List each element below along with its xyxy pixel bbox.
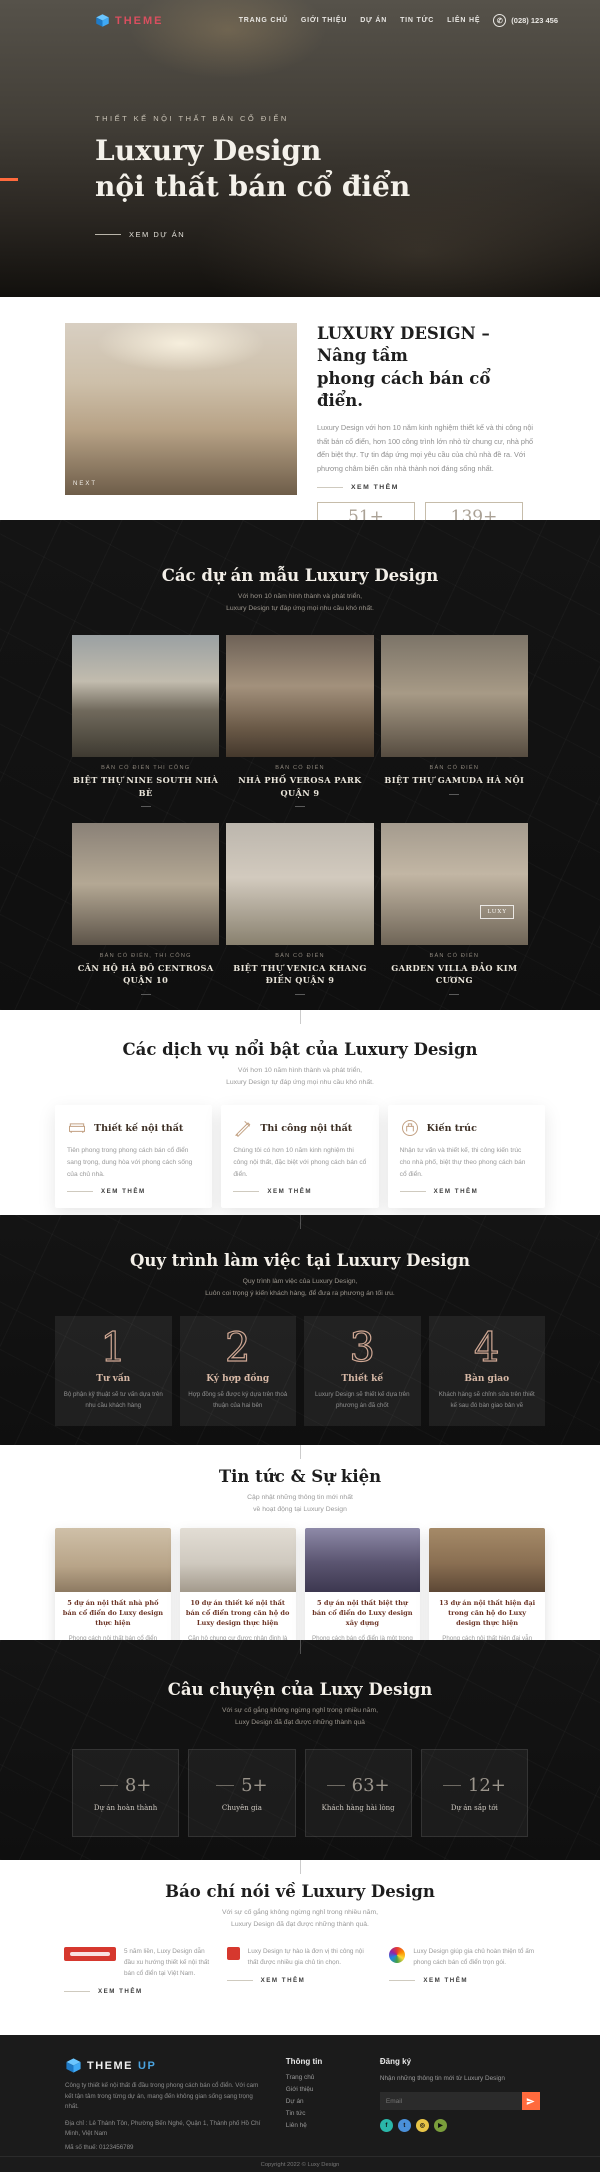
logo-cube-icon [95, 13, 110, 28]
news-subtitle: Cập nhật những thông tin mới nhất về hoạ… [55, 1492, 545, 1516]
hero-eyebrow: THIẾT KẾ NỘI THẤT BÁN CỔ ĐIỂN [95, 114, 410, 123]
footer-link-contact[interactable]: Liên hệ [286, 2122, 380, 2129]
story-stat-experts: 5+ Chuyên gia [188, 1749, 295, 1837]
send-icon [526, 2097, 535, 2106]
project-image [226, 635, 373, 757]
projects-row-1: BÁN CỔ ĐIỂN THI CÔNG BIỆT THỰ NINE SOUTH… [72, 635, 528, 807]
copyright-text: Copyright 2022 © Luxy Design [0, 2156, 600, 2172]
press-more-link[interactable]: XEM THÊM [227, 1977, 374, 1984]
logo[interactable]: THEME [95, 13, 164, 28]
projects-row-2: BÁN CỔ ĐIỂN, THI CÔNG CĂN HỘ HÀ ĐÔ CENTR… [72, 823, 528, 995]
process-steps: 1 Tư vấn Bộ phận kỹ thuật sẽ tư vấn dựa … [55, 1316, 545, 1425]
story-subtitle: Với sự cố gắng không ngừng nghỉ trong nh… [72, 1705, 528, 1729]
service-more-link[interactable]: XEM THÊM [67, 1188, 200, 1195]
project-card[interactable]: BÁN CỔ ĐIỂN NHÀ PHỐ VEROSA PARK QUẬN 9 [226, 635, 373, 807]
service-more-link[interactable]: XEM THÊM [233, 1188, 366, 1195]
step-card-1: 1 Tư vấn Bộ phận kỹ thuật sẽ tư vấn dựa … [55, 1316, 172, 1425]
footer-link-about[interactable]: Giới thiệu [286, 2086, 380, 2093]
story-stats: 8+ Dự án hoàn thành 5+ Chuyên gia 63+ Kh… [72, 1749, 528, 1837]
stat-projects: 51+ Công trình [317, 502, 415, 520]
news-card[interactable]: 5 dự án nội thất biệt thự bán cổ điển do… [305, 1528, 421, 1640]
story-section: Câu chuyện của Luxy Design Với sự cố gắn… [0, 1640, 600, 1860]
project-image [72, 635, 219, 757]
newspaper-logo-red-square [227, 1947, 240, 1960]
project-image [72, 823, 219, 945]
hero-content: THIẾT KẾ NỘI THẤT BÁN CỔ ĐIỂN Luxury Des… [95, 114, 410, 239]
footer-company-column: THEME UP Công ty thiết kế nội thất đi đầ… [65, 2057, 272, 2153]
press-more-link[interactable]: XEM THÊM [64, 1988, 211, 1995]
step-card-3: 3 Thiết kế Luxury Design sẽ thiết kế dựa… [304, 1316, 421, 1425]
services-title: Các dịch vụ nổi bật của Luxury Design [55, 1040, 545, 1059]
service-card-design[interactable]: Thiết kế nội thất Tiên phong trong phong… [55, 1105, 212, 1208]
project-card[interactable]: BÁN CỔ ĐIỂN BIỆT THỰ VENICA KHANG ĐIỀN Q… [226, 823, 373, 995]
phone-link[interactable]: ✆ (028) 123 456 [493, 14, 558, 27]
about-more-link[interactable]: XEM THÊM [317, 484, 535, 491]
press-title: Báo chí nói về Luxury Design [62, 1882, 538, 1901]
step-card-4: 4 Bàn giao Khách hàng sẽ chỉnh sửa trên … [429, 1316, 546, 1425]
nav-item-contact[interactable]: LIÊN HỆ [447, 17, 480, 24]
news-image [429, 1528, 545, 1592]
sofa-icon [67, 1118, 87, 1138]
press-more-link[interactable]: XEM THÊM [389, 1977, 536, 1984]
about-title: LUXURY DESIGN – Nâng tầm phong cách bán … [317, 323, 535, 412]
luxy-watermark: LUXY [480, 905, 514, 919]
story-stat-upcoming: 12+ Dự án sắp tới [421, 1749, 528, 1837]
about-photo: NEXT [65, 323, 297, 495]
news-card[interactable]: 10 dự án thiết kế nội thất bán cổ điển t… [180, 1528, 296, 1640]
project-image: LUXY [381, 823, 528, 945]
cta-line [95, 234, 121, 235]
press-card[interactable]: Luxy Design giúp gia chủ hoàn thiện tổ ấ… [387, 1943, 538, 1999]
footer-info-title: Thông tin [286, 2057, 380, 2066]
footer-link-news[interactable]: Tin tức [286, 2110, 380, 2117]
about-text-column: LUXURY DESIGN – Nâng tầm phong cách bán … [297, 323, 535, 520]
hero-cta-button[interactable]: XEM DỰ ÁN [95, 230, 410, 239]
news-card[interactable]: 13 dự án nội thất hiện đại trong căn hộ … [429, 1528, 545, 1640]
service-card-architecture[interactable]: Kiến trúc Nhận tư vấn và thiết kế, thi c… [388, 1105, 545, 1208]
services-cards: Thiết kế nội thất Tiên phong trong phong… [55, 1105, 545, 1208]
subscribe-send-button[interactable] [522, 2092, 540, 2110]
press-card[interactable]: Luxy Design tự hào là đơn vị thi công nộ… [225, 1943, 376, 1999]
footer-link-home[interactable]: Trang chủ [286, 2074, 380, 2081]
footer-link-projects[interactable]: Dự án [286, 2098, 380, 2105]
news-card[interactable]: 5 dự án nội thất nhà phố bán cổ điển do … [55, 1528, 171, 1640]
twitter-icon[interactable]: t [398, 2119, 411, 2132]
project-card[interactable]: BÁN CỔ ĐIỂN, THI CÔNG CĂN HỘ HÀ ĐÔ CENTR… [72, 823, 219, 995]
nav-item-news[interactable]: TIN TỨC [400, 17, 434, 24]
brand-name: THEME [115, 15, 164, 27]
story-stat-happy-clients: 63+ Khách hàng hài lòng [305, 1749, 412, 1837]
footer-about: Công ty thiết kế nội thất đi đầu trong p… [65, 2081, 265, 2113]
about-body: Luxury Design với hơn 10 năm kinh nghiệm… [317, 421, 535, 475]
press-cards: 5 năm liền, Luxy Design dẫn đầu xu hướng… [62, 1943, 538, 1999]
building-icon [400, 1118, 420, 1138]
hero-title: Luxury Design nội thất bán cổ điển [95, 133, 410, 206]
about-section: NEXT LUXURY DESIGN – Nâng tầm phong cách… [0, 297, 600, 520]
nav-item-projects[interactable]: DỰ ÁN [360, 17, 387, 24]
news-image [55, 1528, 171, 1592]
facebook-icon[interactable]: f [380, 2119, 393, 2132]
pencil-ruler-icon [233, 1118, 253, 1138]
projects-title: Các dự án mẫu Luxury Design [72, 566, 528, 585]
project-image [226, 823, 373, 945]
slider-indicator [0, 178, 18, 181]
news-section: Tin tức & Sự kiện Cập nhật những thông t… [0, 1445, 600, 1640]
news-image [180, 1528, 296, 1592]
news-title: Tin tức & Sự kiện [55, 1467, 545, 1486]
step-card-2: 2 Ký hợp đồng Hợp đồng sẽ được ký dựa tr… [180, 1316, 297, 1425]
projects-section: Các dự án mẫu Luxury Design Với hơn 10 n… [0, 520, 600, 1010]
services-subtitle: Với hơn 10 năm hình thành và phát triển,… [55, 1065, 545, 1089]
story-title: Câu chuyện của Luxy Design [72, 1680, 528, 1699]
nav-item-home[interactable]: TRANG CHỦ [239, 17, 288, 24]
news-cards: 5 dự án nội thất nhà phố bán cổ điển do … [55, 1528, 545, 1640]
services-section: Các dịch vụ nổi bật của Luxury Design Vớ… [0, 1010, 600, 1215]
hero-section: THEME TRANG CHỦ GIỚI THIỆU DỰ ÁN TIN TỨC… [0, 0, 600, 297]
service-more-link[interactable]: XEM THÊM [400, 1188, 533, 1195]
service-card-construction[interactable]: Thi công nội thất Chúng tôi có hơn 10 nă… [221, 1105, 378, 1208]
project-image [381, 635, 528, 757]
press-section: Báo chí nói về Luxury Design Với sự cố g… [0, 1860, 600, 2035]
press-card[interactable]: 5 năm liền, Luxy Design dẫn đầu xu hướng… [62, 1943, 213, 1999]
slider-next-button[interactable]: NEXT [73, 481, 97, 487]
process-subtitle: Quy trình làm việc của Luxury Design, Lu… [55, 1276, 545, 1300]
phone-icon: ✆ [493, 14, 506, 27]
project-card[interactable]: BÁN CỔ ĐIỂN BIỆT THỰ GAMUDA HÀ NỘI [381, 635, 528, 807]
phone-number: (028) 123 456 [511, 16, 558, 25]
footer-subscribe-text: Nhận những thông tin mới từ Luxury Desig… [380, 2074, 530, 2084]
header: THEME TRANG CHỦ GIỚI THIỆU DỰ ÁN TIN TỨC… [0, 0, 600, 28]
process-title: Quy trình làm việc tại Luxury Design [55, 1251, 545, 1270]
project-card[interactable]: LUXY BÁN CỔ ĐIỂN GARDEN VILLA ĐẢO KIM CƯ… [381, 823, 528, 995]
main-nav: TRANG CHỦ GIỚI THIỆU DỰ ÁN TIN TỨC LIÊN … [239, 14, 558, 27]
social-links: f t ◎ ▶ [380, 2119, 535, 2132]
instagram-icon[interactable]: ◎ [416, 2119, 429, 2132]
press-subtitle: Với sự cố gắng không ngừng nghỉ trong nh… [62, 1907, 538, 1931]
story-stat-completed: 8+ Dự án hoàn thành [72, 1749, 179, 1837]
footer-subscribe-title: Đăng ký [380, 2057, 535, 2066]
email-input[interactable] [380, 2092, 522, 2110]
process-section: Quy trình làm việc tại Luxury Design Quy… [0, 1215, 600, 1445]
footer-info-column: Thông tin Trang chủ Giới thiệu Dự án Tin… [272, 2057, 380, 2153]
footer-logo[interactable]: THEME UP [65, 2057, 272, 2074]
stat-clients: 139+ Khách hàng [425, 502, 523, 520]
footer-tax-id: Mã số thuế: 0123456789 [65, 2143, 265, 2154]
newspaper-logo-round [389, 1947, 405, 1963]
footer-subscribe-column: Đăng ký Nhận những thông tin mới từ Luxu… [380, 2057, 535, 2153]
logo-cube-icon [65, 2057, 82, 2074]
footer: THEME UP Công ty thiết kế nội thất đi đầ… [0, 2035, 600, 2172]
about-stats: 51+ Công trình 139+ Khách hàng [317, 502, 535, 520]
footer-address: Địa chỉ : Lê Thánh Tôn, Phường Bến Nghé,… [65, 2119, 265, 2140]
newspaper-logo-red-wordmark [64, 1947, 116, 1961]
nav-item-about[interactable]: GIỚI THIỆU [301, 17, 347, 24]
projects-subtitle: Với hơn 10 năm hình thành và phát triển,… [72, 591, 528, 615]
youtube-icon[interactable]: ▶ [434, 2119, 447, 2132]
news-image [305, 1528, 421, 1592]
project-card[interactable]: BÁN CỔ ĐIỂN THI CÔNG BIỆT THỰ NINE SOUTH… [72, 635, 219, 807]
